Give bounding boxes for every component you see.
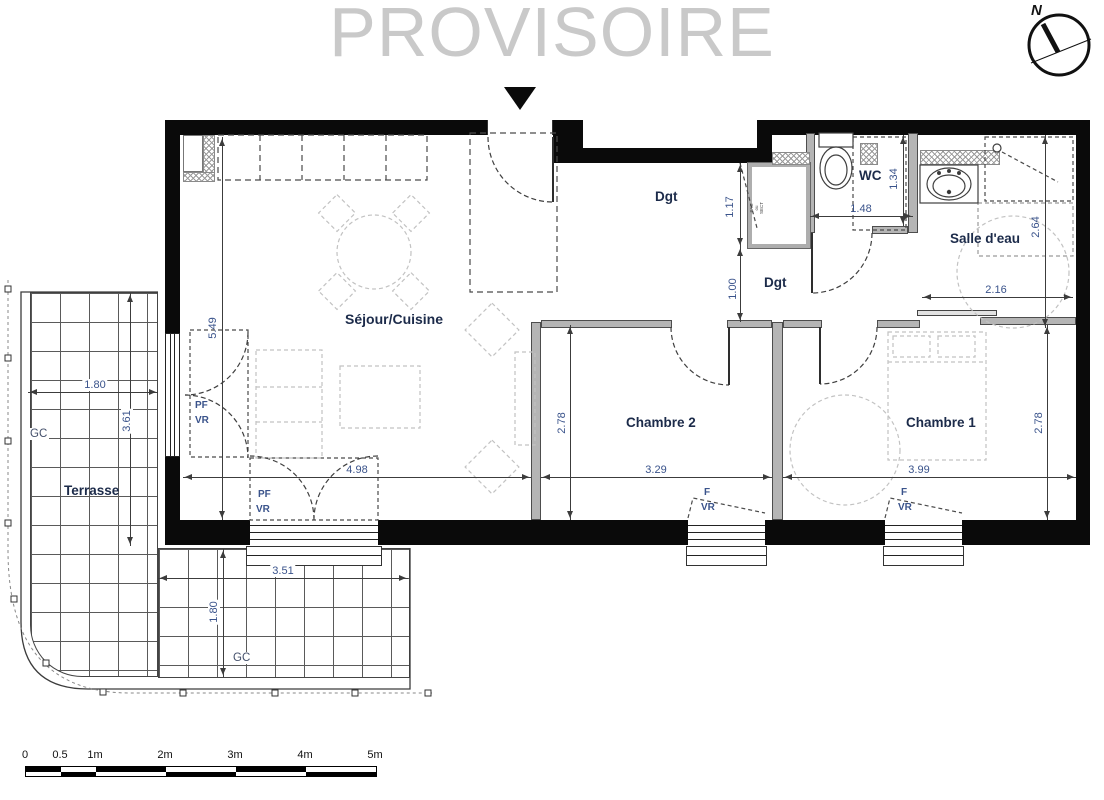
- dim-sejour-height: 5.49: [207, 317, 219, 338]
- shower-door-line: [1002, 152, 1058, 182]
- room-label-dgt-lower: Dgt: [764, 275, 787, 290]
- dim-chambre1-width: 3.99: [908, 464, 929, 476]
- room-label-wc: WC: [859, 168, 882, 183]
- terrace-post: [272, 690, 278, 696]
- room-label-dgt-upper: Dgt: [655, 189, 678, 204]
- faucet-dot: [958, 172, 961, 175]
- dim-chambre2-width: 3.29: [645, 464, 666, 476]
- dim-terrace-left-height: 3.61: [121, 408, 133, 433]
- chair: [393, 273, 430, 310]
- scale-tick-3m: 3m: [227, 749, 242, 761]
- window-ch1-tilt-symbol: [885, 498, 962, 518]
- gc-label-left: GC: [28, 428, 49, 440]
- shower-drain: [993, 144, 1001, 152]
- chambre1-door-arc: [820, 327, 877, 384]
- terrace-post: [5, 286, 11, 292]
- dimline-sejour-height: [222, 137, 223, 520]
- scale-segment: [166, 767, 236, 776]
- dim-chambre2-height: 2.78: [556, 412, 568, 433]
- window-ch2-tilt-symbol: [688, 498, 765, 518]
- left-window-label-pf: PF: [195, 400, 208, 411]
- sanitary-fixtures: [819, 133, 1001, 203]
- tv-shelf: [515, 352, 535, 445]
- room-label-salledeau: Salle d'eau: [950, 231, 1020, 246]
- scale-segment: [26, 767, 61, 776]
- chair: [319, 195, 356, 232]
- terrace-post: [5, 438, 11, 444]
- room-label-sejour: Séjour/Cuisine: [345, 311, 443, 327]
- scale-segment: [236, 767, 306, 776]
- floor-plan-canvas: PROVISOIRE N PAC ou SECT: [0, 0, 1104, 800]
- dimline-chambre2-height: [570, 325, 571, 520]
- chair: [319, 273, 356, 310]
- scale-segment: [61, 767, 96, 776]
- scale-segment: [96, 767, 166, 776]
- dim-chambre1-height: 2.78: [1033, 412, 1045, 433]
- dimline-wc-width: [810, 216, 913, 217]
- ch1-window-label-f: F: [901, 487, 907, 498]
- kitchen-counter: [218, 135, 427, 180]
- dim-wc-height: 1.34: [888, 168, 900, 189]
- dimline-terrace-left-width: [28, 392, 158, 393]
- terrace-post: [352, 690, 358, 696]
- terrace-post: [5, 355, 11, 361]
- scale-tick-2m: 2m: [157, 749, 172, 761]
- gc-label-bottom: GC: [231, 652, 252, 664]
- terrace-post: [11, 596, 17, 602]
- armchair: [465, 303, 519, 357]
- bed: [888, 332, 986, 460]
- dim-sejour-width: 4.98: [346, 464, 367, 476]
- bed-pillow: [893, 336, 930, 357]
- dim-salledeau-height: 2.64: [1030, 216, 1042, 237]
- ch1-window-label-vr: VR: [898, 502, 912, 513]
- sejour-window-label-pf: PF: [258, 489, 271, 500]
- scale-tick-05: 0.5: [52, 749, 67, 761]
- sejour-window-label-vr: VR: [256, 504, 270, 515]
- chair: [393, 195, 430, 232]
- dimline-chambre1-height: [1047, 325, 1048, 520]
- turning-circle-chambre1: [790, 395, 900, 505]
- armchair: [465, 440, 519, 494]
- dimline-sejour-width: [183, 477, 531, 478]
- wc-door-arc: [812, 233, 872, 293]
- door-arcs: [185, 137, 877, 520]
- scale-segment: [306, 767, 376, 776]
- dimline-hall-lower: [740, 247, 741, 322]
- room-label-chambre1: Chambre 1: [906, 415, 976, 430]
- dimline-chambre1-width: [783, 477, 1076, 478]
- entrance-closet: [470, 133, 557, 292]
- dimline-terrace-bottom-height: [223, 549, 224, 677]
- coffee-table: [340, 366, 420, 428]
- terrace-post: [5, 520, 11, 526]
- shower-clearance: [978, 203, 1073, 256]
- scale-bar: [25, 766, 377, 777]
- room-label-chambre2: Chambre 2: [626, 415, 696, 430]
- door-leaves: [553, 137, 820, 385]
- scale-tick-4m: 4m: [297, 749, 312, 761]
- hall-door-line: [740, 163, 757, 228]
- bed-pillow: [938, 336, 975, 357]
- entrance-door-arc: [488, 137, 553, 202]
- dim-wc-width: 1.48: [850, 203, 871, 215]
- terrace-post: [425, 690, 431, 696]
- plan-graphics: [0, 0, 1104, 800]
- dimline-salledeau-height: [1045, 135, 1046, 328]
- dim-hall-upper: 1.17: [724, 196, 736, 217]
- scale-tick-1m: 1m: [87, 749, 102, 761]
- toilet-tank: [819, 133, 853, 147]
- toilet-bowl-inner: [825, 155, 847, 185]
- dimline-terrace-bottom-width: [158, 578, 408, 579]
- scale-tick-5m: 5m: [367, 749, 382, 761]
- ch2-window-label-f: F: [704, 487, 710, 498]
- north-compass-icon: [1029, 15, 1091, 75]
- dim-terrace-bottom-width: 3.51: [270, 565, 295, 577]
- terrace-post: [43, 660, 49, 666]
- compass-needle: [1043, 24, 1058, 52]
- sofa: [256, 350, 322, 458]
- dining-table: [337, 215, 411, 289]
- faucet-dot: [938, 172, 941, 175]
- dimline-wc-height: [903, 135, 904, 226]
- left-window-arc-top: [185, 332, 248, 395]
- terrace-post: [100, 689, 106, 695]
- dimline-chambre2-width: [541, 477, 772, 478]
- terrace-post: [180, 690, 186, 696]
- compass-crossline: [1031, 39, 1091, 63]
- chambre2-door-arc: [671, 327, 729, 385]
- dim-hall-lower: 1.00: [727, 278, 739, 299]
- dim-terrace-bottom-height: 1.80: [208, 599, 220, 624]
- ch2-window-label-vr: VR: [701, 502, 715, 513]
- scale-tick-0: 0: [22, 749, 28, 761]
- sink-drain-dot: [947, 190, 950, 193]
- faucet-dot: [948, 170, 951, 173]
- dim-salledeau-width: 2.16: [985, 284, 1006, 296]
- dimline-hall-upper: [740, 163, 741, 247]
- left-window-label-vr: VR: [195, 415, 209, 426]
- compass-circle: [1029, 15, 1089, 75]
- dim-terrace-left-width: 1.80: [82, 379, 107, 391]
- room-label-terrasse: Terrasse: [64, 483, 119, 498]
- dimline-salledeau-width: [922, 297, 1073, 298]
